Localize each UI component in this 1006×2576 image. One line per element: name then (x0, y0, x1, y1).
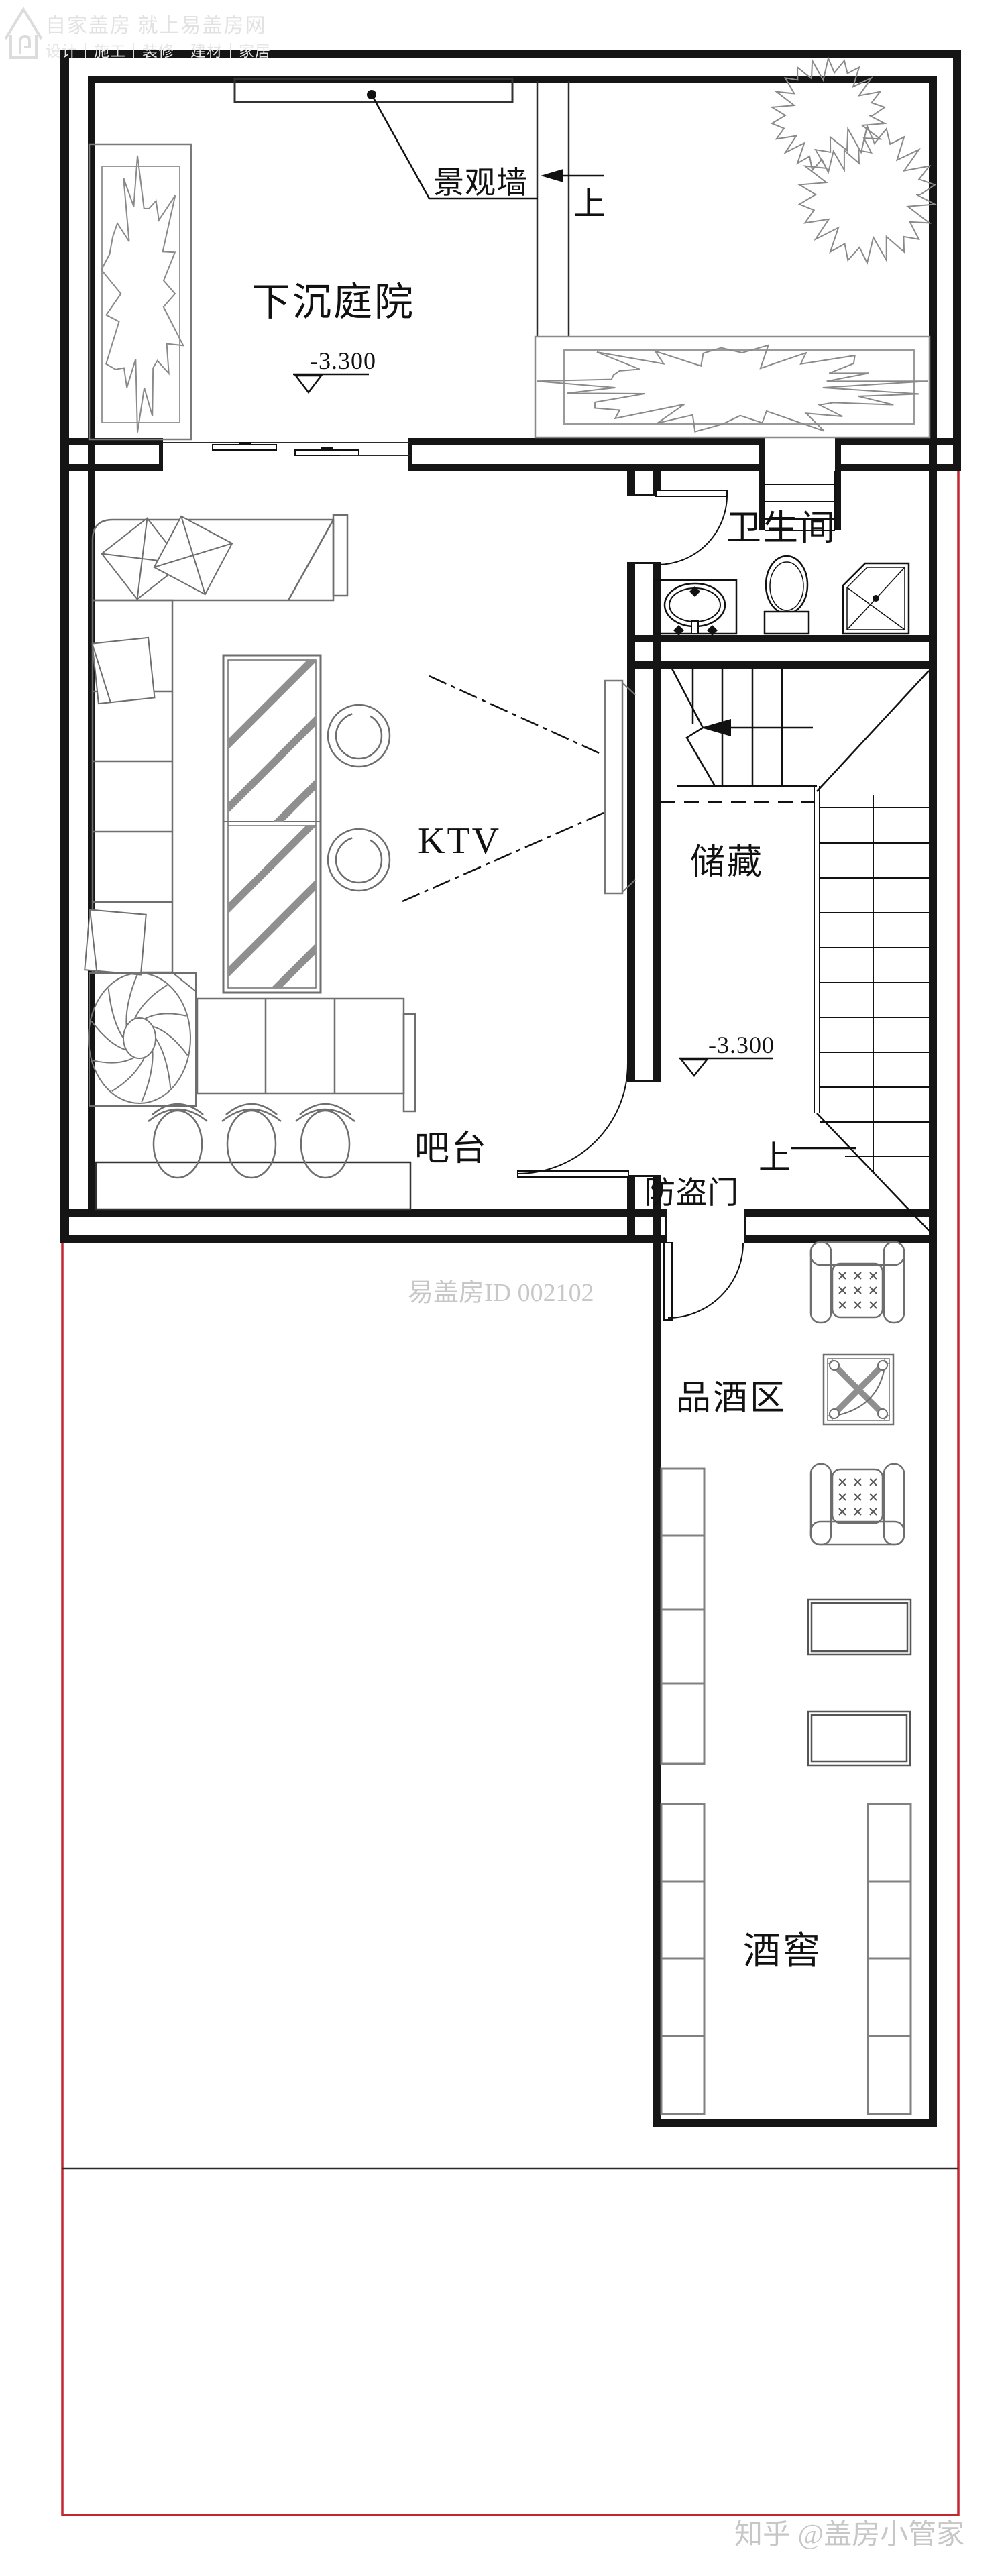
wall-courtyard-bottom-b2 (410, 464, 759, 471)
wall-courtyard-bottom-b1 (410, 438, 759, 445)
planting-bed-plant (101, 156, 183, 433)
planting-bed-frame (89, 144, 191, 439)
rock-bed-frame (535, 337, 930, 437)
cushion-x-mark (839, 1508, 846, 1515)
wall-courtyard-bottom-a2 (60, 464, 161, 471)
cushion-x-mark (854, 1494, 861, 1500)
wall-cap-securitydoor-right (744, 1209, 746, 1243)
watermark-logo-line2: 设计｜施工｜装修｜建材｜家居 (46, 43, 271, 60)
cushion-x-mark (870, 1494, 877, 1500)
wall-bar-bottom-a (60, 1209, 667, 1217)
sofa-pillows (85, 516, 232, 975)
hall-door-swing-arc (518, 1064, 628, 1174)
wall-wine-left (653, 1243, 661, 2127)
fan-blade (144, 1013, 186, 1019)
cushion-x-mark (839, 1479, 846, 1486)
wall-wine-top-a (744, 1209, 937, 1217)
cushion-x-mark (870, 1508, 877, 1515)
bathroom: 卫生间 (654, 490, 909, 636)
cushion-x-mark (854, 1272, 861, 1279)
ktv-label: KTV (418, 820, 501, 862)
sunken-courtyard: 景观墙 上 下沉庭院 -3.300 (89, 58, 935, 530)
elevation-hall-text: -3.300 (708, 1031, 775, 1058)
ktv-table (201, 624, 349, 1063)
bar-label: 吧台 (414, 1130, 488, 1168)
sink-faucet (691, 621, 698, 634)
wall-left-outer (60, 50, 69, 1243)
fan-blade (156, 1038, 170, 1088)
toilet-tank (765, 612, 809, 634)
storage-label: 储藏 (690, 844, 764, 882)
tree-icon (799, 126, 935, 263)
bar-stools (148, 1104, 355, 1178)
house-logo-icon (5, 9, 42, 58)
cushion-x-mark (839, 1494, 846, 1500)
security-door-swing-arc (668, 1243, 743, 1318)
round-stools (328, 705, 390, 891)
wine-wing: 品酒区 (661, 1242, 911, 2114)
ktv-room: KTV (85, 515, 635, 1209)
up-label-stairs: 上 (759, 1140, 791, 1176)
sliding-door-panel-1 (213, 445, 276, 450)
toilet-bowl (766, 556, 807, 614)
wall-bath-bottom-b (627, 661, 937, 669)
bathroom-label: 卫生间 (726, 510, 837, 548)
up-label-courtyard: 上 (573, 186, 606, 222)
tasting-table (824, 1355, 893, 1424)
rock-bed-inner (564, 350, 914, 424)
cellar-label: 酒窖 (743, 1931, 822, 1972)
watermark-logo-line1: 自家盖房 就上易盖房网 (46, 15, 267, 37)
watermark-logo: 自家盖房 就上易盖房网 设计｜施工｜装修｜建材｜家居 (5, 9, 271, 60)
wall-cap-bathdoor-bottom (627, 562, 661, 564)
cushion-x-mark (839, 1272, 846, 1279)
watermark-id: 易盖房ID 002102 (408, 1279, 594, 1307)
up-arrow-courtyard-head (541, 169, 563, 182)
stair-direction-arrow-head (701, 719, 731, 736)
sideboard-cabinet (197, 999, 415, 1111)
cushion-x-mark (854, 1287, 861, 1294)
security-door (664, 1243, 743, 1320)
bar-counter (96, 1162, 410, 1209)
security-door-label: 防盗门 (645, 1176, 739, 1210)
tree-icon (772, 58, 885, 172)
rock-bed-stones (537, 345, 928, 432)
cushion-x-mark (854, 1508, 861, 1515)
wall-cap-slidingdoor-left (159, 438, 163, 471)
shower-drain (873, 595, 879, 602)
bathroom-door-swing-arc (658, 496, 727, 565)
corner-fan-plant (89, 973, 196, 1106)
elevation-courtyard-triangle (296, 376, 321, 392)
toilet-bowl-inner (770, 562, 803, 610)
cushion-x-mark (870, 1479, 877, 1486)
wall-courtyard-bottom-c1 (841, 438, 961, 445)
bathroom-door-leaf (656, 490, 727, 496)
wall-cap-bardoor-top (627, 1080, 661, 1082)
cushion-x-mark (839, 1302, 846, 1308)
wall-ktv-hall-1a (627, 471, 635, 494)
elevation-courtyard-text: -3.300 (310, 347, 376, 374)
cushion-x-mark (870, 1302, 877, 1308)
cushion-x-mark (870, 1287, 877, 1294)
wine-display-tables (808, 1600, 911, 1765)
wall-bath-bottom-a (627, 635, 937, 642)
planting-bed-inner (102, 166, 180, 423)
landscape-wall-label: 景观墙 (433, 166, 528, 200)
wall-bar-bottom-b (60, 1235, 667, 1243)
wall-right-outer-top (953, 50, 961, 466)
watermark-zhihu: 知乎 @盖房小管家 (734, 2519, 964, 2551)
armchair-bottom (811, 1464, 904, 1545)
fan-blade (109, 989, 123, 1039)
cushion-x-mark (839, 1287, 846, 1294)
tv-viewing-lines (402, 676, 604, 901)
cushion-x-mark (854, 1302, 861, 1308)
tasting-label: 品酒区 (676, 1380, 787, 1418)
cushion-x-mark (854, 1479, 861, 1486)
armchair-top (811, 1242, 904, 1323)
wall-cellar-bottom (653, 2119, 937, 2127)
security-door-leaf (664, 1243, 672, 1320)
wall-cap-securitydoor-left (665, 1209, 667, 1243)
cushion-x-mark (870, 1272, 877, 1279)
sliding-door-panel-2 (295, 450, 359, 455)
wine-racks (661, 1469, 911, 2114)
wall-courtyard-bottom-c2 (841, 464, 961, 471)
fan-blade (93, 1058, 134, 1063)
stair-hall: 储藏 -3.300 上 防盗门 (645, 669, 932, 1234)
stair-landing-diagonal (817, 671, 929, 791)
courtyard-label: 下沉庭院 (251, 280, 415, 324)
elevation-hall-triangle (681, 1060, 707, 1076)
floor-plan-canvas: 景观墙 上 下沉庭院 -3.300 (0, 0, 1006, 2576)
stair-right-run (814, 786, 929, 1172)
